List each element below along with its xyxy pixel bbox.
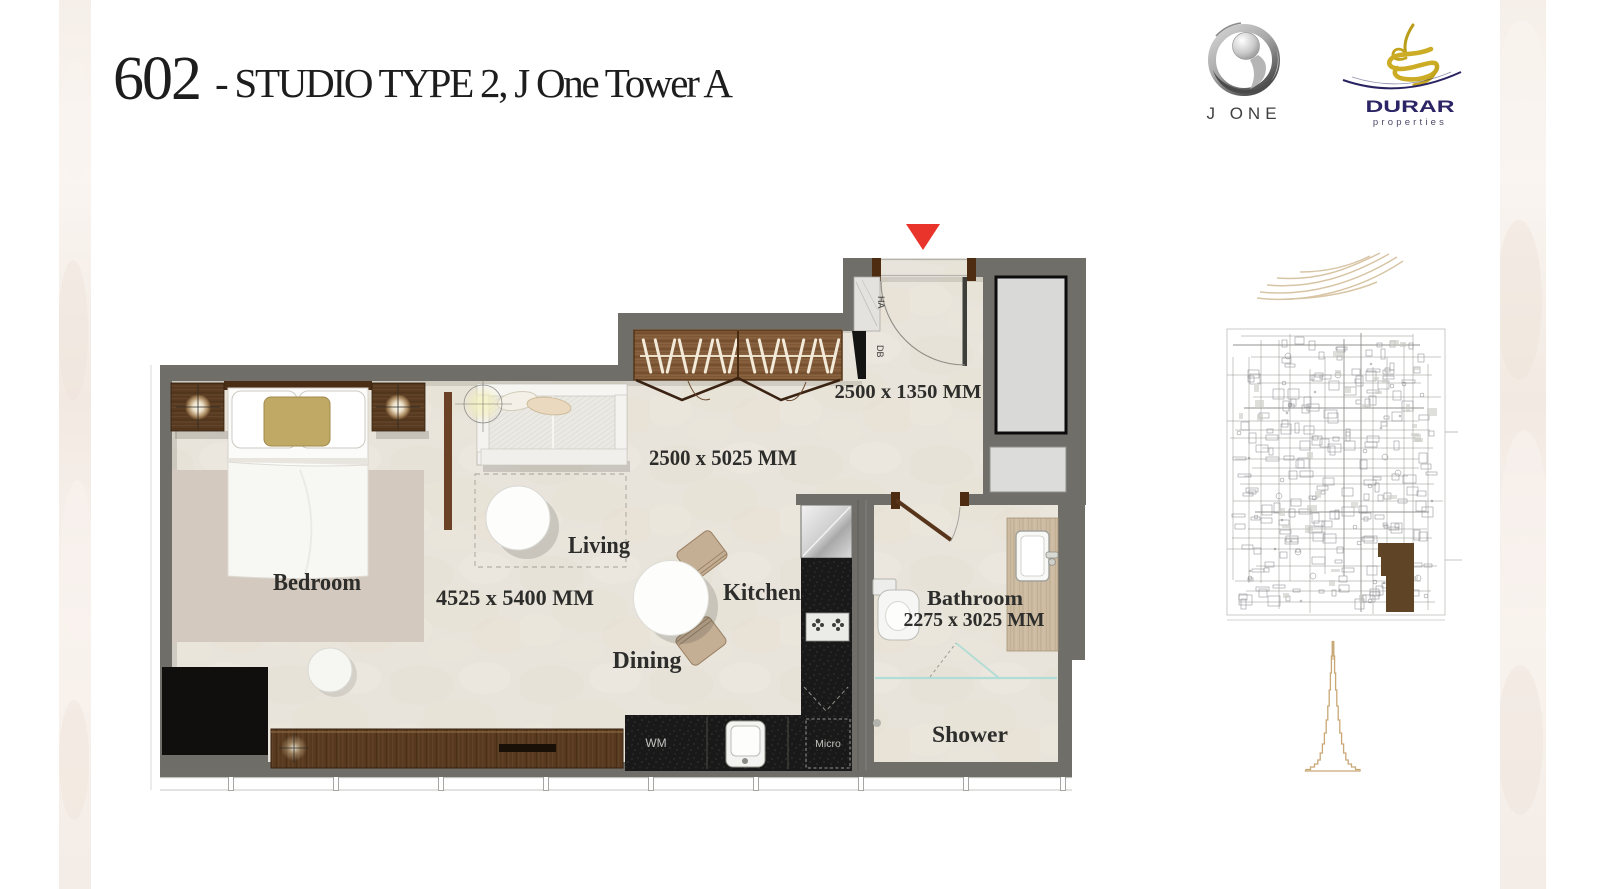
svg-text:2275 x 3025 MM: 2275 x 3025 MM bbox=[904, 609, 1045, 631]
svg-text:Bedroom: Bedroom bbox=[273, 570, 361, 596]
svg-text:- STUDIO TYPE 2, J One Tower A: - STUDIO TYPE 2, J One Tower A bbox=[215, 60, 733, 106]
svg-text:602: 602 bbox=[113, 45, 202, 113]
svg-text:WM: WM bbox=[645, 736, 666, 750]
svg-text:Living: Living bbox=[568, 533, 630, 559]
svg-text:2500 x 5025 MM: 2500 x 5025 MM bbox=[649, 445, 797, 470]
svg-text:J ONE: J ONE bbox=[1206, 104, 1281, 123]
svg-text:Dining: Dining bbox=[613, 648, 682, 674]
svg-text:HA: HA bbox=[876, 296, 886, 309]
svg-text:2500 x 1350 MM: 2500 x 1350 MM bbox=[835, 381, 982, 403]
svg-text:Shower: Shower bbox=[932, 722, 1008, 747]
svg-text:Micro: Micro bbox=[815, 738, 841, 750]
svg-text:DB: DB bbox=[875, 345, 885, 358]
svg-text:DURAR: DURAR bbox=[1366, 97, 1455, 116]
svg-text:properties: properties bbox=[1373, 117, 1447, 128]
svg-text:Kitchen: Kitchen bbox=[723, 580, 801, 606]
svg-text:Bathroom: Bathroom bbox=[927, 586, 1024, 610]
svg-text:4525 x 5400 MM: 4525 x 5400 MM bbox=[436, 585, 594, 610]
